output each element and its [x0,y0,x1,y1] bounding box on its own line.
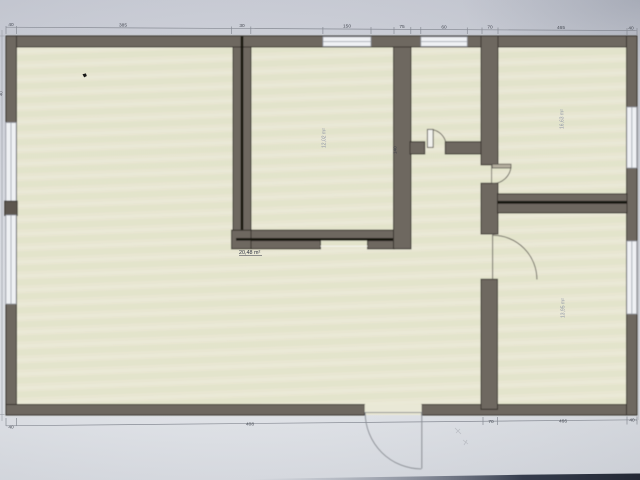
svg-text:70: 70 [488,419,494,425]
svg-text:40: 40 [0,91,4,96]
svg-text:150: 150 [343,24,351,30]
svg-text:40: 40 [628,25,634,31]
svg-text:75: 75 [399,24,405,30]
svg-text:408: 408 [246,421,254,427]
svg-text:16,63 m²: 16,63 m² [560,109,566,129]
svg-text:60: 60 [441,24,447,30]
svg-text:140: 140 [393,146,398,154]
svg-text:20,48 m²: 20,48 m² [239,250,260,256]
svg-text:385: 385 [119,23,127,29]
svg-text:30: 30 [239,23,245,29]
svg-text:12,02 m²: 12,02 m² [322,128,328,148]
svg-text:466: 466 [559,418,567,424]
svg-text:40: 40 [8,424,14,430]
svg-text:70: 70 [487,25,493,31]
svg-text:465: 465 [557,25,565,31]
svg-text:40: 40 [8,22,14,28]
svg-text:40: 40 [629,418,635,424]
svg-text:13,95 m²: 13,95 m² [561,298,567,318]
